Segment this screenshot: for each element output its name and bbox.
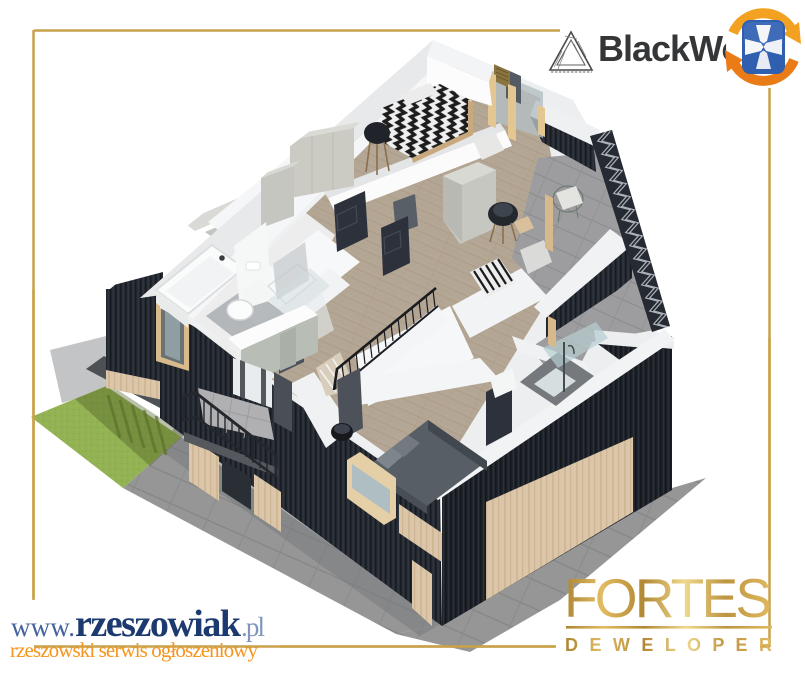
svg-text:BlackWo: BlackWo	[598, 28, 742, 69]
svg-text:rzeszowski serwis ogłoszeniowy: rzeszowski serwis ogłoszeniowy	[10, 638, 259, 662]
svg-text:FORTES: FORTES	[564, 567, 772, 629]
svg-text:D E W E L O P E R: D E W E L O P E R	[565, 635, 772, 655]
